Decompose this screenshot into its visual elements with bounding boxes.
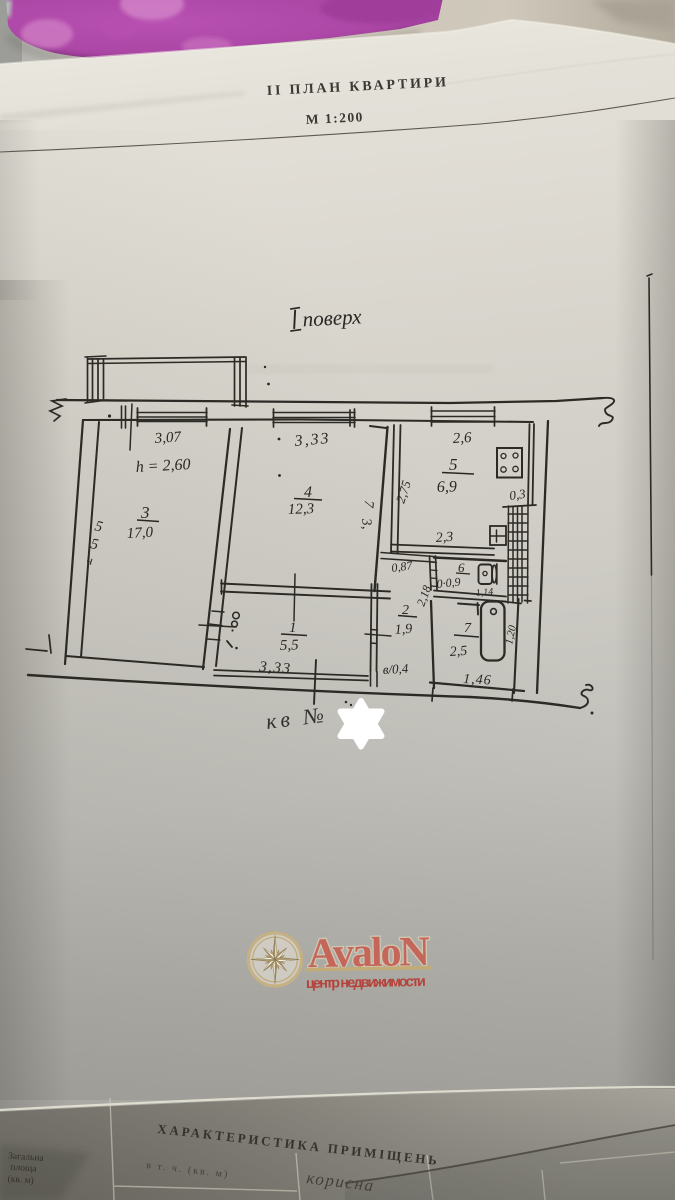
- svg-text:5: 5: [449, 455, 458, 474]
- svg-text:3,: 3,: [358, 517, 374, 530]
- svg-text:12,3: 12,3: [288, 501, 315, 518]
- svg-text:центр недвижимости: центр недвижимости: [306, 974, 426, 992]
- svg-text:3,07: 3,07: [153, 429, 183, 447]
- svg-text:М 1:200: М 1:200: [305, 109, 364, 127]
- svg-text:3: 3: [140, 503, 150, 522]
- svg-text:0,3: 0,3: [508, 486, 527, 503]
- svg-text:в/0,4: в/0,4: [382, 661, 409, 677]
- svg-text:1,14: 1,14: [475, 587, 493, 599]
- svg-text:17,0: 17,0: [126, 525, 154, 542]
- svg-text:1,46: 1,46: [463, 672, 492, 688]
- svg-text:1: 1: [289, 620, 297, 636]
- svg-text:поверх: поверх: [302, 304, 363, 331]
- svg-text:h = 2,60: h = 2,60: [135, 456, 191, 476]
- svg-text:7: 7: [464, 621, 472, 636]
- svg-text:1,9: 1,9: [394, 622, 413, 638]
- svg-text:3,33: 3,33: [293, 430, 331, 450]
- svg-text:3,33: 3,33: [258, 659, 292, 677]
- svg-text:6,9: 6,9: [437, 478, 458, 496]
- svg-text:0·0,9: 0·0,9: [436, 575, 461, 591]
- svg-text:2,5: 2,5: [449, 644, 468, 660]
- svg-text:5,5: 5,5: [280, 637, 300, 654]
- svg-text:2,3: 2,3: [435, 530, 454, 546]
- svg-text:2,6: 2,6: [452, 430, 472, 447]
